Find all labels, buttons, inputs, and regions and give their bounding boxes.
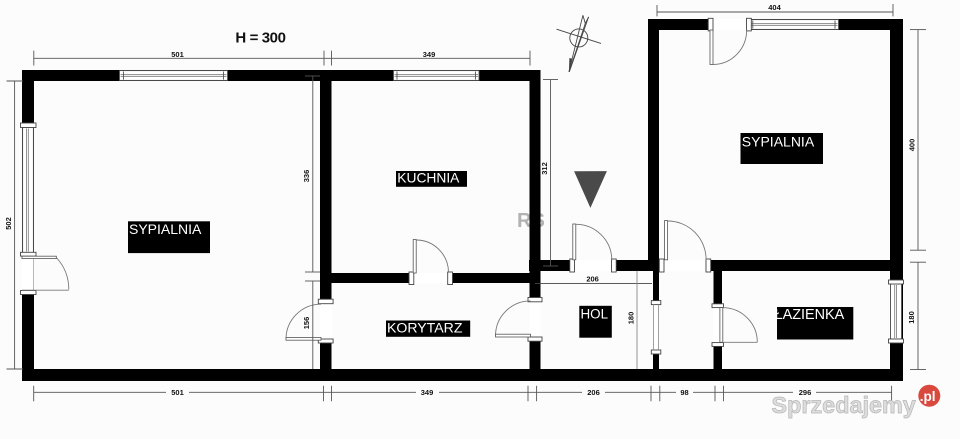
svg-text:.pl: .pl <box>920 389 936 404</box>
svg-text:502: 502 <box>4 217 13 230</box>
svg-text:501: 501 <box>171 50 184 59</box>
svg-text:KUCHNIA: KUCHNIA <box>397 170 460 185</box>
svg-text:Sprzedajemy: Sprzedajemy <box>772 392 916 418</box>
svg-text:404: 404 <box>768 3 781 12</box>
svg-text:H = 300: H = 300 <box>235 29 285 46</box>
svg-text:501: 501 <box>171 388 184 397</box>
svg-text:400: 400 <box>908 139 917 152</box>
svg-text:206: 206 <box>587 388 600 397</box>
svg-text:312: 312 <box>540 162 549 175</box>
svg-text:180: 180 <box>627 312 636 325</box>
svg-text:SYPIALNIA: SYPIALNIA <box>129 221 202 237</box>
svg-text:336: 336 <box>302 170 311 183</box>
svg-text:206: 206 <box>586 274 599 283</box>
svg-text:SYPIALNIA: SYPIALNIA <box>742 134 815 150</box>
svg-text:KORYTARZ: KORYTARZ <box>387 320 463 336</box>
svg-text:98: 98 <box>680 388 688 397</box>
svg-text:180: 180 <box>907 311 916 324</box>
svg-text:ŁAZIENKA: ŁAZIENKA <box>775 307 845 323</box>
svg-text:HOL: HOL <box>581 306 609 321</box>
svg-text:156: 156 <box>302 317 311 330</box>
svg-text:349: 349 <box>423 50 436 59</box>
svg-text:349: 349 <box>421 388 434 397</box>
